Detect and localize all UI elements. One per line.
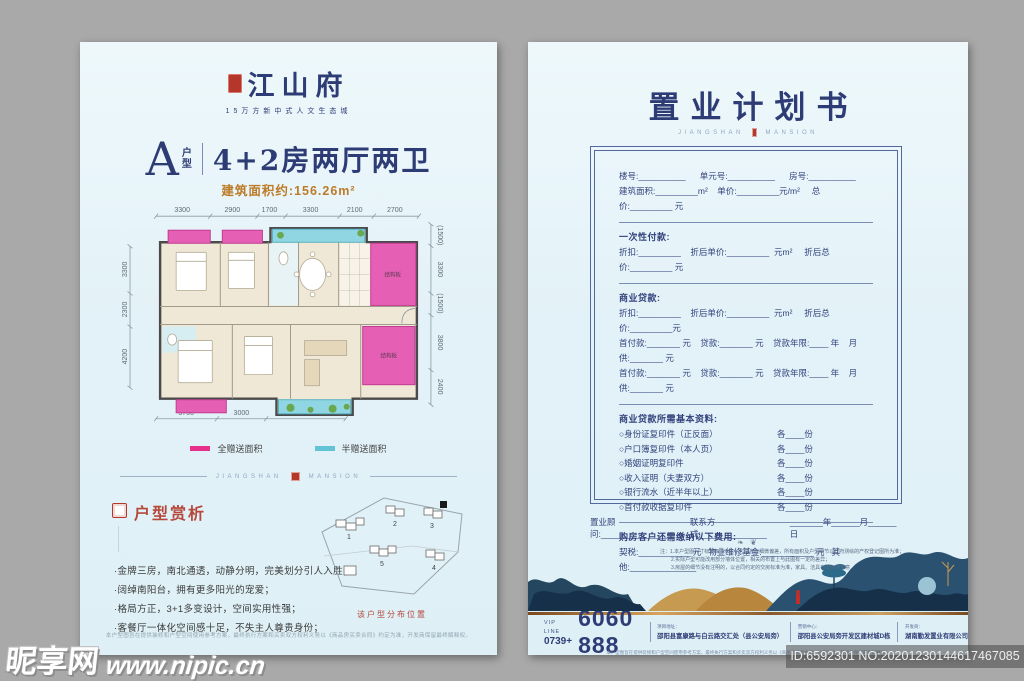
dim-top-5: 2100 bbox=[347, 207, 363, 214]
footer-separator bbox=[650, 622, 651, 642]
dim-top-2: 2900 bbox=[225, 207, 241, 214]
divider-line-left bbox=[120, 476, 207, 477]
analysis-bullet-3: ·格局方正，3+1多变设计，空间实用性强； bbox=[114, 600, 332, 619]
balcony-full-gift-1 bbox=[168, 230, 210, 243]
dim-right-1: (1500) bbox=[436, 225, 443, 245]
brand-name: 江山府 bbox=[248, 64, 350, 103]
site-buildings bbox=[336, 506, 444, 575]
mountain-arch bbox=[918, 577, 936, 595]
floorplan-legend: 全赠送面积 半赠送面积 bbox=[80, 442, 497, 455]
divider-word-jiangshan: JIANGSHAN bbox=[216, 474, 282, 480]
building-area-line: 建筑面积约:156.26m² bbox=[80, 180, 497, 199]
brand-tagline: 15万方新中式人文生态城 bbox=[80, 106, 497, 116]
doc-row: ○身份证复印件（正反面） 各____份 bbox=[619, 427, 873, 442]
doc-row: ○户口簿复印件（本人页） 各____份 bbox=[619, 442, 873, 457]
dim-right-2: 3300 bbox=[436, 262, 443, 278]
note-line-3: 3.房屋的细节没有注明的，以合同约定的交房标准为准，家具、洁具布置仅供示意 bbox=[660, 564, 922, 572]
legend-label-half-gift: 半赠送面积 bbox=[342, 442, 387, 455]
floorplan-svg: 3300 2900 1700 3300 2100 2700 3300 2300 … bbox=[120, 202, 457, 443]
unit-type-char1: 户 bbox=[182, 148, 192, 159]
form-section-documents: 商业贷款所需基本资料: bbox=[619, 412, 873, 427]
divider-word-jiangshan: JIANGSHAN bbox=[678, 130, 744, 136]
plan-form: 楼号:__________ 单元号:__________ 房号:________… bbox=[594, 150, 898, 500]
unit-type-label: 户 型 bbox=[182, 148, 192, 170]
title-divider-line bbox=[202, 143, 203, 175]
form-divider bbox=[619, 404, 873, 405]
brand-seal-icon bbox=[228, 74, 242, 93]
vip-line-block: VIP LINE 0739+ bbox=[544, 619, 572, 646]
contact-footer: VIP LINE 0739+ 6060 888 项目地址： 邵阳县富康路与白云路… bbox=[528, 615, 968, 649]
floorplan-rooms: 结构板 结构板 bbox=[160, 228, 417, 415]
analysis-seal-icon bbox=[112, 503, 127, 518]
doc-count-2: 各____份 bbox=[777, 442, 813, 457]
siteplan-figure: 1 2 3 4 5 该户型分布位置 bbox=[312, 490, 472, 620]
doc-count-3: 各____份 bbox=[777, 456, 813, 471]
building-number-3: 3 bbox=[430, 523, 434, 530]
balcony-full-gift-2 bbox=[222, 230, 262, 243]
dim-left-2: 2300 bbox=[122, 302, 129, 318]
divider-seal-icon bbox=[752, 128, 758, 137]
doc-row: ○首付款收据复印件 各____份 bbox=[619, 500, 873, 515]
flyer-page-floorplan: 江山府 15万方新中式人文生态城 A 户 型 4+2房两厅两卫 建筑面积约:15… bbox=[80, 42, 497, 655]
phone-area-code: 0739+ bbox=[544, 637, 572, 646]
gold-hills bbox=[648, 587, 782, 611]
watermark-id-bar: ID:6592301 NO:20201230144617467085 bbox=[786, 645, 1024, 668]
unit-type-char2: 型 bbox=[182, 159, 192, 170]
doc-name-6: ○首付款收据复印件 bbox=[619, 500, 777, 515]
doc-count-5: 各____份 bbox=[777, 485, 813, 500]
analysis-bullet-2: ·阔绰南阳台，拥有更多阳光的宠爱； bbox=[114, 581, 332, 600]
form-section-loan: 商业贷款: bbox=[619, 291, 873, 306]
footer-col-sales-center: 营销中心： 邵阳县公安局旁开发区建材城D栋 bbox=[798, 623, 891, 641]
form-row-loan-3: 首付款:_______ 元 贷款:_______ 元 贷款年限:____ 年 月… bbox=[619, 366, 873, 396]
brand-logo: 江山府 15万方新中式人文生态城 bbox=[80, 64, 497, 116]
full-gift-swatch-icon bbox=[190, 446, 210, 451]
form-row-area: 建筑面积:_________m² 单价:_________元/m² 总价:___… bbox=[619, 184, 873, 214]
note-line-1: 注：1.本户型图尺寸标准仅供示意，可能存在细微偏差，所有面积及户型细节以政府测绘… bbox=[660, 548, 922, 556]
dim-left-3: 4200 bbox=[122, 349, 129, 365]
siteplan-svg: 1 2 3 4 5 bbox=[312, 490, 472, 602]
doc-row: ○婚姻证明复印件 各____份 bbox=[619, 456, 873, 471]
stock-site-watermark: 昵享网 www.nipic.cn bbox=[4, 636, 269, 681]
dim-top-6: 2700 bbox=[387, 207, 403, 214]
analysis-title: 户型赏析 bbox=[134, 500, 206, 524]
watermark-site-name: 昵享网 bbox=[4, 636, 102, 681]
sales-center-value: 邵阳县公安局旁开发区建材城D栋 bbox=[798, 633, 891, 641]
form-row-loan-2: 首付款:_______ 元 贷款:_______ 元 贷款年限:____ 年 月… bbox=[619, 336, 873, 366]
building-number-4: 4 bbox=[432, 565, 436, 572]
half-gift-swatch-icon bbox=[315, 446, 335, 451]
dim-right-4: 3800 bbox=[436, 335, 443, 351]
balcony-half-gift-top bbox=[272, 229, 364, 242]
doc-row: ○收入证明（夫妻双方） 各____份 bbox=[619, 471, 873, 486]
developer-label: 开发商： bbox=[905, 623, 968, 631]
address-label: 项目地址： bbox=[657, 623, 783, 631]
doc-count-4: 各____份 bbox=[777, 471, 813, 486]
floorplan-figure: 3300 2900 1700 3300 2100 2700 3300 2300 … bbox=[120, 202, 457, 448]
unit-type-title: A 户 型 4+2房两厅两卫 bbox=[80, 138, 497, 180]
slab-label-2: 结构板 bbox=[381, 352, 398, 360]
doc-name-4: ○收入证明（夫妻双方） bbox=[619, 471, 777, 486]
form-row-unit: 楼号:__________ 单元号:__________ 房号:________… bbox=[619, 169, 873, 184]
footer-col-address: 项目地址： 邵阳县富康路与白云路交汇处（县公安局旁） bbox=[657, 623, 783, 641]
balcony-full-gift-3 bbox=[176, 400, 226, 413]
brand-divider-right-page: JIANGSHAN MANSION bbox=[678, 128, 818, 137]
dim-bottom-2: 3000 bbox=[234, 410, 250, 417]
doc-name-5: ○银行流水（近半年以上） bbox=[619, 485, 777, 500]
building-number-5: 5 bbox=[380, 561, 384, 568]
building-number-1: 1 bbox=[347, 534, 351, 541]
form-row-loan-1: 折扣:_________ 折后单价:_________ 元m² 折后总价:___… bbox=[619, 306, 873, 336]
unit-type-letter: A bbox=[146, 138, 179, 180]
unit-headline: 4+2房两厅两卫 bbox=[213, 139, 431, 179]
footer-col-developer: 开发商： 湖南勤发置业有限公司 bbox=[905, 623, 968, 641]
watermark-site-url: www.nipic.cn bbox=[105, 652, 267, 681]
dim-left-1: 3300 bbox=[122, 261, 129, 277]
dim-right-3: (1500) bbox=[436, 293, 443, 313]
doc-name-3: ○婚姻证明复印件 bbox=[619, 456, 777, 471]
footer-separator bbox=[897, 622, 898, 642]
sales-center-label: 营销中心： bbox=[798, 623, 891, 631]
dim-top-4: 3300 bbox=[303, 207, 319, 214]
plan-form-box: 楼号:__________ 单元号:__________ 房号:________… bbox=[590, 146, 902, 504]
divider-word-mansion: MANSION bbox=[765, 130, 818, 136]
doc-name-1: ○身份证复印件（正反面） bbox=[619, 427, 777, 442]
footer-separator bbox=[790, 622, 791, 642]
divider-line-right bbox=[370, 476, 457, 477]
form-row-onetime: 折扣:_________ 折后单价:_________ 元m² 折后总价:___… bbox=[619, 245, 873, 275]
red-figure-icon bbox=[796, 594, 800, 604]
address-value: 邵阳县富康路与白云路交汇处（县公安局旁） bbox=[657, 633, 783, 641]
brand-divider: JIANGSHAN MANSION bbox=[120, 472, 457, 481]
analysis-decor-line bbox=[118, 526, 119, 552]
form-divider bbox=[619, 283, 873, 284]
form-divider bbox=[619, 222, 873, 223]
divider-seal-icon bbox=[291, 472, 300, 481]
analysis-bullets: ·金牌三房，南北通透，动静分明，完美划分引人入胜； ·阔绰南阳台，拥有更多阳光的… bbox=[114, 562, 332, 638]
left-mountain-range bbox=[528, 578, 646, 611]
divider-word-mansion: MANSION bbox=[309, 474, 362, 480]
building-number-2: 2 bbox=[393, 521, 397, 528]
plan-book-title: 置业计划书 bbox=[528, 82, 968, 127]
dim-right-5: 2400 bbox=[436, 379, 443, 395]
doc-name-2: ○户口簿复印件（本人页） bbox=[619, 442, 777, 457]
dim-top-3: 1700 bbox=[262, 207, 278, 214]
legend-item-half-gift: 半赠送面积 bbox=[315, 442, 387, 455]
developer-value: 湖南勤发置业有限公司 bbox=[905, 633, 968, 641]
legend-label-full-gift: 全赠送面积 bbox=[217, 442, 262, 455]
doc-count-6: 各____份 bbox=[777, 500, 813, 515]
legend-item-full-gift: 全赠送面积 bbox=[190, 442, 262, 455]
note-line-2: 2.实际户型可能改用部分墙体位置，相关的布置上与此图有一定的差异； bbox=[660, 556, 922, 564]
highlighted-unit-marker bbox=[440, 501, 447, 508]
flyer-page-plan-form: 置业计划书 JIANGSHAN MANSION 楼号:__________ 单元… bbox=[528, 42, 968, 655]
form-section-onetime: 一次性付款: bbox=[619, 230, 873, 245]
fineprint-notes: 注：1.本户型图尺寸标准仅供示意，可能存在细微偏差，所有面积及户型细节以政府测绘… bbox=[660, 548, 922, 572]
doc-count-1: 各____份 bbox=[777, 427, 813, 442]
doc-row: ○银行流水（近半年以上） 各____份 bbox=[619, 485, 873, 500]
siteplan-caption: 该户型分布位置 bbox=[312, 609, 472, 620]
slab-label-1: 结构板 bbox=[385, 270, 402, 278]
dim-top-1: 3300 bbox=[174, 207, 190, 214]
vip-line-label: VIP LINE bbox=[544, 619, 572, 637]
unit-analysis-section: 户型赏析 ·金牌三房，南北通透，动静分明，完美划分引人入胜； ·阔绰南阳台，拥有… bbox=[112, 500, 332, 638]
analysis-bullet-1: ·金牌三房，南北通透，动静分明，完美划分引人入胜； bbox=[114, 562, 332, 581]
